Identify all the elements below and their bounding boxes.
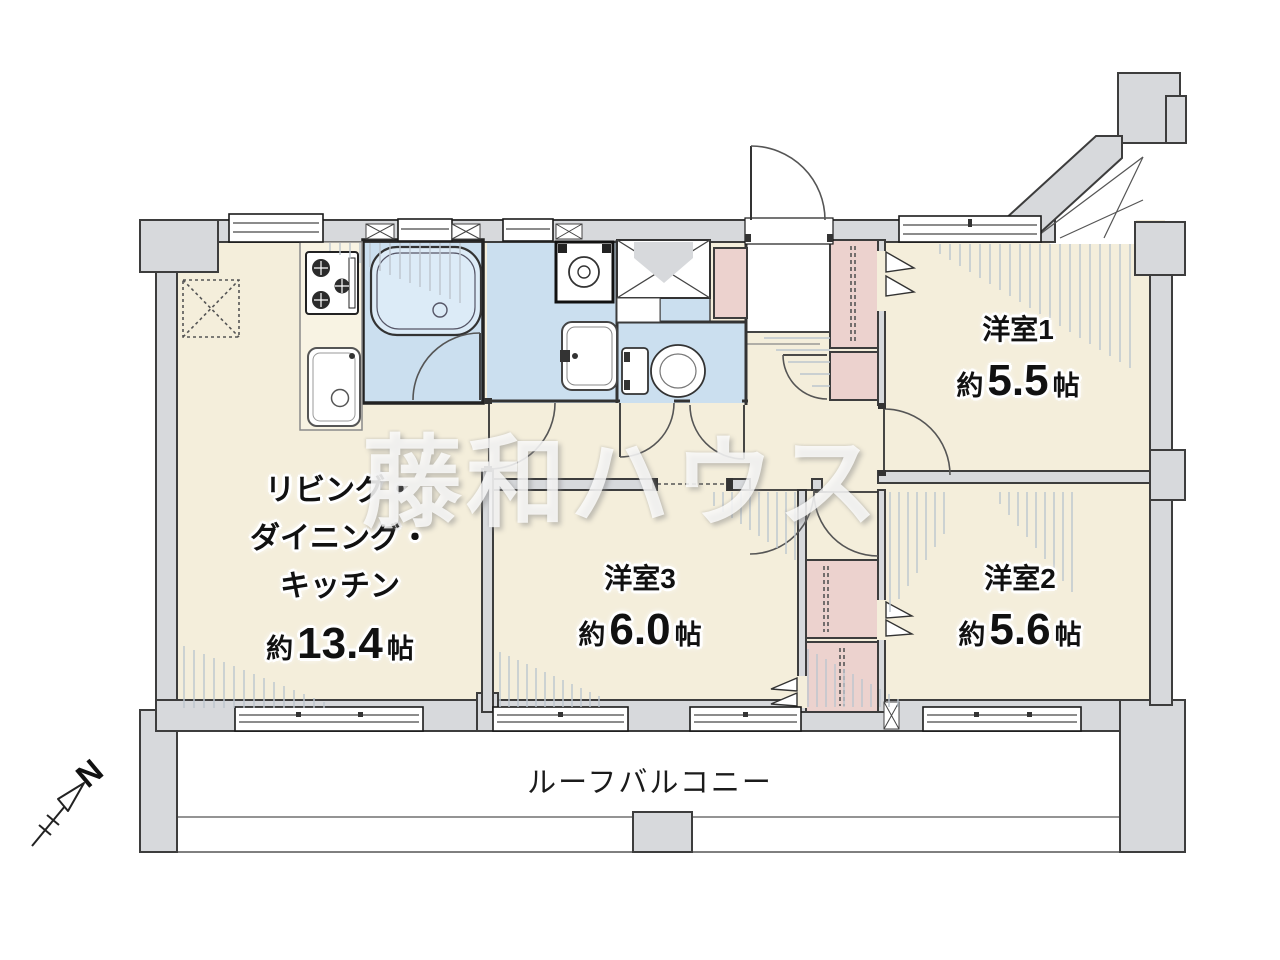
balcony-partition-box [633, 812, 692, 852]
right-top-pillar [1135, 222, 1185, 275]
shoe-cabinet [714, 248, 747, 318]
water-heater-box [660, 298, 710, 322]
right-jog [1150, 450, 1185, 500]
wall-hall-room3-a [493, 479, 657, 490]
balcony-label: ルーフバルコニー [527, 759, 773, 801]
room3-area: 約6.0帖 [578, 605, 701, 655]
wall-ldk-room3 [482, 469, 493, 712]
wall-room1-room2 [878, 471, 1150, 483]
window-room2-balcony [923, 707, 1081, 731]
room2-area: 約5.6帖 [958, 605, 1081, 655]
room-label-ldk: リビング・ ダイニング・ キッチン 約13.4帖 [250, 467, 430, 669]
window-bath [398, 219, 452, 241]
window-room3-balcony-left [493, 707, 628, 731]
wash-basin-icon [560, 322, 617, 390]
entrance-floor [747, 242, 832, 344]
hall-storage [830, 352, 878, 400]
floor-plan-page: N リビング・ ダイニング・ キッチン 約13.4帖 洋室1 約5.5帖 洋室3… [0, 0, 1280, 960]
entrance-door [745, 146, 833, 244]
ldk-name-line1: リビング・ [250, 467, 430, 515]
bottom-right-pillar [1120, 700, 1185, 852]
top-left-pillar [140, 220, 218, 272]
bathtub-icon [371, 247, 481, 335]
room-label-room2: 洋室2 約5.6帖 [958, 557, 1081, 655]
window-room3-balcony-right [690, 707, 801, 731]
window-washroom [503, 219, 553, 241]
stove-icon [306, 252, 358, 314]
ldk-area: 約13.4帖 [250, 619, 430, 669]
left-wall [156, 272, 177, 712]
washing-machine-icon [556, 242, 613, 302]
window-ldk-top [229, 214, 323, 242]
north-arrowhead [58, 783, 84, 811]
floor-plan-drawing: N [0, 0, 1280, 960]
kitchen-sink-icon [308, 348, 360, 426]
room1-area: 約5.5帖 [956, 356, 1079, 406]
ldk-name-line2: ダイニング・ [250, 515, 430, 563]
wall-stub-room2-door [812, 479, 822, 490]
room-label-room3: 洋室3 約6.0帖 [578, 557, 701, 655]
closet-room2-upper [806, 560, 878, 638]
ldk-name-line3: キッチン [250, 563, 430, 611]
room-label-room1: 洋室1 約5.5帖 [956, 308, 1079, 406]
north-arrow: N [32, 752, 110, 846]
window-room1-top [899, 216, 1041, 242]
toilet-icon [622, 345, 705, 397]
closet-room1 [830, 240, 878, 348]
kitchen-counter [300, 242, 362, 430]
window-ldk-balcony [235, 707, 423, 731]
